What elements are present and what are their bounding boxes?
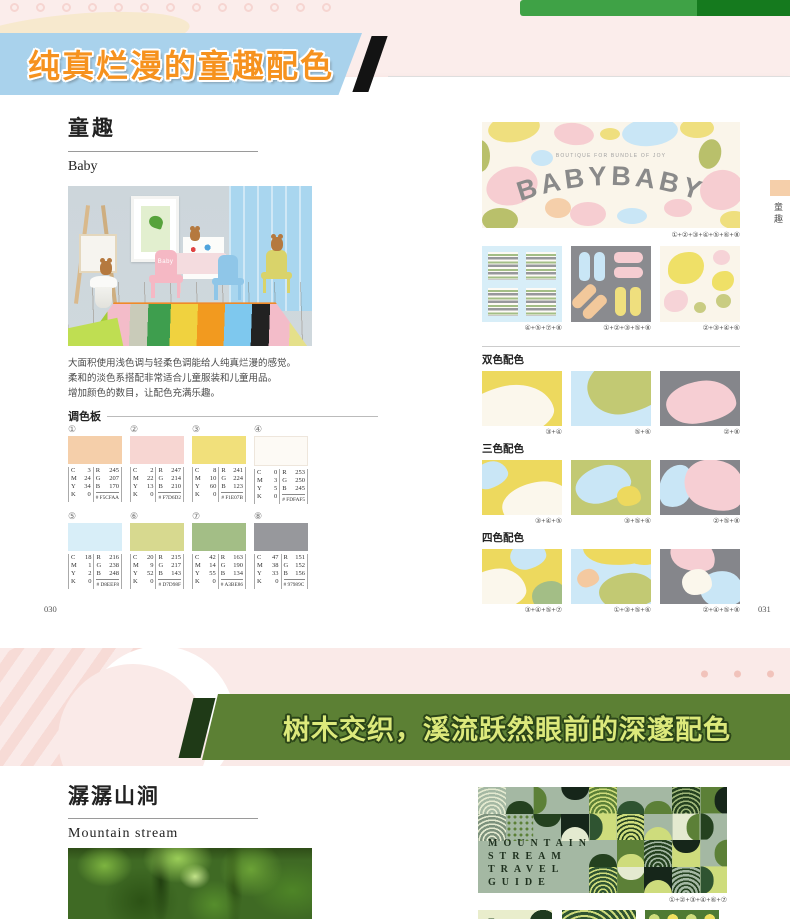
photo-stool [90, 276, 117, 289]
value-number: 0 [150, 578, 153, 586]
color-blob [664, 377, 738, 426]
tile-caption: ③+⑤+⑥ [571, 517, 651, 525]
value-row: R215 [158, 554, 181, 562]
swatch-color [130, 523, 184, 551]
palette-row-2: ⑤C18M1Y2K0R216G238B248# D8EEF8⑥C20M9Y52K… [68, 511, 308, 589]
scheme-section-label: 三色配色 [482, 441, 740, 456]
semicircle-shape [644, 827, 672, 841]
value-row: M22 [133, 475, 153, 483]
value-label: Y [257, 570, 262, 578]
flower-icon [166, 3, 175, 12]
bunny-ears-pattern [571, 246, 651, 322]
semicircle-shape [533, 814, 561, 828]
semicircle-shape [617, 867, 645, 881]
pattern-cell [617, 814, 645, 841]
value-row: G152 [284, 562, 306, 570]
swatch-color [130, 436, 184, 464]
semicircle-shape [672, 840, 700, 854]
value-number: 10 [210, 475, 217, 483]
scheme-tile-art [482, 549, 562, 604]
value-row: C8 [195, 467, 216, 475]
swatch-values: C18M1Y2K0R216G238B248# D8EEF8 [68, 554, 122, 589]
color-blob [583, 371, 651, 420]
design-tile-stripes: ④+⑤+⑦+⑧ [482, 246, 562, 332]
value-row: G238 [96, 562, 119, 570]
semicircle-shape [561, 787, 589, 801]
value-label: M [133, 562, 139, 570]
left-page-subtitle: Baby [68, 159, 98, 175]
rgb-column: R241G224B123# F1E07B [218, 467, 246, 502]
value-row: R151 [284, 554, 306, 562]
progress-bar-segment-dark [697, 0, 790, 16]
value-number: 55 [209, 570, 216, 578]
color-blob [482, 565, 529, 604]
value-label: C [257, 469, 261, 477]
semicircle-shape [617, 854, 645, 868]
scheme-tile-art [482, 460, 562, 515]
value-number: 216 [109, 554, 119, 562]
value-number: 143 [171, 570, 181, 578]
banner-color-caption: ①+②+③+④+⑤+⑥+⑧ [482, 231, 740, 239]
value-row: K0 [257, 578, 279, 586]
scheme-tile-art [571, 460, 651, 515]
photo-blue-chair [212, 255, 244, 300]
value-label: R [282, 469, 286, 477]
color-blob [482, 460, 511, 493]
value-row: R216 [96, 554, 119, 562]
semicircle-shape [700, 866, 714, 893]
swatch-values: C3M24Y34K0R245G207B170# F5CFAA [68, 467, 122, 502]
value-number: 14 [209, 562, 216, 570]
value-row: K0 [71, 491, 91, 499]
value-row: R245 [96, 467, 119, 475]
value-row: B210 [158, 483, 181, 491]
value-number: 38 [272, 562, 279, 570]
palette-row-1: ①C3M24Y34K0R245G207B170# F5CFAA②C2M22Y13… [68, 424, 308, 504]
color-blob [532, 581, 562, 604]
value-row: M3 [257, 477, 277, 485]
palette-rule [107, 416, 378, 417]
tile-caption: ⑤+⑥ [571, 428, 651, 436]
value-number: 250 [295, 477, 305, 485]
palette-label: 调色板 [68, 408, 101, 424]
value-number: 42 [209, 554, 216, 562]
hex-value: # FDFAF5 [282, 494, 305, 504]
flower-icon [114, 3, 123, 12]
value-number: 0 [88, 578, 91, 586]
value-number: 170 [109, 483, 119, 491]
value-label: G [158, 562, 163, 570]
value-number: 152 [295, 562, 305, 570]
scheme-sections: 双色配色③+④⑤+⑥②+⑧三色配色③+④+⑤③+⑤+⑥②+⑤+⑧四色配色③+④+… [482, 346, 740, 614]
value-number: 2 [88, 570, 91, 578]
title-rule [68, 151, 258, 152]
value-number: 248 [109, 570, 119, 578]
value-number: 207 [109, 475, 119, 483]
scheme-tile: ②+⑤+⑧ [660, 460, 740, 525]
value-number: 0 [213, 491, 216, 499]
scheme-section-label: 四色配色 [482, 530, 740, 545]
value-label: G [221, 562, 226, 570]
semicircle-shape [700, 813, 714, 841]
pattern-cell [617, 787, 645, 814]
value-label: Y [71, 483, 76, 491]
flower-icon [192, 3, 201, 12]
value-row: C0 [257, 469, 277, 477]
value-row: G250 [282, 477, 305, 485]
semicircle-shape [714, 787, 727, 815]
flower-icon [244, 3, 253, 12]
value-row: C42 [195, 554, 216, 562]
value-label: C [133, 554, 137, 562]
value-label: G [221, 475, 226, 483]
scheme-tiles-row: ③+④⑤+⑥②+⑧ [482, 371, 740, 436]
color-blob [499, 477, 562, 515]
chair-text: Baby [149, 259, 183, 265]
value-label: B [96, 570, 100, 578]
palette-swatch-block: ④C0M3Y5K0R253G250B245# FDFAF5 [254, 424, 308, 504]
value-number: 123 [233, 483, 243, 491]
value-label: Y [195, 570, 200, 578]
value-row: M14 [195, 562, 216, 570]
baby-banner-subtitle: BOUTIQUE FOR BUNDLE OF JOY [556, 153, 666, 159]
scheme-tile: ②+④+⑤+⑧ [660, 549, 740, 614]
value-row: B123 [221, 483, 243, 491]
value-row: K0 [257, 493, 277, 501]
cmyk-column: C3M24Y34K0 [68, 467, 93, 502]
value-label: Y [71, 570, 76, 578]
tile-caption: ②+⑧ [660, 428, 740, 436]
value-row: B156 [284, 570, 306, 578]
palette-swatch-block: ①C3M24Y34K0R245G207B170# F5CFAA [68, 424, 122, 504]
pattern-cell [644, 867, 672, 894]
flower-icon [62, 3, 71, 12]
value-number: 3 [87, 467, 90, 475]
tile-caption: ②+③+④+⑥ [660, 324, 740, 332]
swatch-number: ⑥ [130, 511, 184, 523]
tile-caption: ①+③+⑤+⑥ [571, 606, 651, 614]
cmyk-column: C47M38Y33K0 [254, 554, 281, 589]
flower-icon [322, 3, 331, 12]
chapter-tab-marker [770, 180, 790, 196]
design-tile-partial [562, 910, 636, 919]
value-label: R [284, 554, 288, 562]
color-blob [507, 549, 548, 572]
value-label: G [282, 477, 287, 485]
semicircle-shape [506, 801, 534, 815]
value-number: 224 [233, 475, 243, 483]
design-tile-bunny-ears: ①+②+③+⑤+⑧ [571, 246, 651, 332]
value-label: G [96, 562, 101, 570]
value-row: K0 [133, 491, 153, 499]
progress-bar-segment-light [520, 0, 697, 16]
value-row: R247 [158, 467, 181, 475]
swatch-number: ③ [192, 424, 246, 436]
value-number: 217 [171, 562, 181, 570]
value-number: 60 [210, 483, 217, 491]
pattern-cell [644, 840, 672, 867]
value-label: R [221, 467, 225, 475]
value-label: C [71, 554, 75, 562]
flower-icon [88, 3, 97, 12]
section-rule [482, 346, 740, 347]
semicircle-shape [686, 813, 700, 841]
section-banner-title: 纯真烂漫的童趣配色 [28, 41, 334, 87]
palette-swatch-block: ⑥C20M9Y52K0R215G217B143# D7D98F [130, 511, 184, 589]
scheme-tile: ③+⑤+⑥ [571, 460, 651, 525]
swatch-values: C8M10Y60K0R241G224B123# F1E07B [192, 467, 246, 502]
value-row: Y13 [133, 483, 153, 491]
semicircle-shape [644, 880, 672, 893]
value-number: 247 [171, 467, 181, 475]
scheme-tile: ①+③+⑤+⑥ [571, 549, 651, 614]
screenshot-root: 纯真烂漫的童趣配色 童趣 Baby Baby 大面积使用浅色调与轻柔色调能给人纯… [0, 0, 790, 919]
value-label: K [71, 578, 76, 586]
value-number: 8 [213, 467, 216, 475]
cmyk-column: C20M9Y52K0 [130, 554, 155, 589]
rgb-column: R253G250B245# FDFAF5 [279, 469, 308, 504]
palette-swatch-block: ③C8M10Y60K0R241G224B123# F1E07B [192, 424, 246, 504]
value-label: G [284, 562, 289, 570]
design-tile-splatter: ②+③+④+⑥ [660, 246, 740, 332]
cmyk-column: C8M10Y60K0 [192, 467, 218, 502]
hex-value: # A3BE86 [221, 579, 243, 589]
value-label: B [158, 570, 162, 578]
scheme-tile-art [571, 549, 651, 604]
swatch-color [254, 436, 308, 466]
swatch-number: ② [130, 424, 184, 436]
hex-value: # F7D6D2 [158, 492, 181, 502]
scheme-tiles-row: ③+④+⑤③+⑤+⑥②+⑤+⑧ [482, 460, 740, 525]
bottom-page-title: 潺潺山涧 [68, 780, 160, 810]
value-number: 13 [147, 483, 154, 491]
swatch-number: ⑤ [68, 511, 122, 523]
pattern-cell [672, 787, 700, 814]
scheme-tile-art [482, 371, 562, 426]
value-row: M38 [257, 562, 279, 570]
page-number-left: 030 [44, 604, 57, 614]
value-row: R253 [282, 469, 305, 477]
value-label: B [221, 483, 225, 491]
value-number: 0 [275, 578, 278, 586]
color-blob [625, 549, 651, 568]
pattern-cell [700, 866, 727, 893]
section-banner-title: 树木交织，溪流跃然眼前的深邃配色 [273, 708, 731, 747]
rgb-column: R163G190B134# A3BE86 [218, 554, 246, 589]
value-label: R [96, 554, 100, 562]
value-row: M1 [71, 562, 91, 570]
rgb-column: R247G214B210# F7D6D2 [155, 467, 184, 502]
chapter-tab-label: 童趣 [772, 202, 785, 226]
swatch-values: C20M9Y52K0R215G217B143# D7D98F [130, 554, 184, 589]
section-divider: 树木交织，溪流跃然眼前的深邃配色 [0, 648, 790, 766]
title-rule [68, 818, 258, 819]
pattern-cell [561, 787, 589, 814]
value-number: 9 [150, 562, 153, 570]
page-number-right: 031 [758, 604, 771, 614]
value-label: K [257, 493, 262, 501]
scheme-tile: ③+④+⑤+⑦ [482, 549, 562, 614]
color-blob [682, 569, 712, 595]
value-label: B [284, 570, 288, 578]
value-label: M [195, 475, 201, 483]
value-row: G190 [221, 562, 243, 570]
value-label: K [133, 578, 138, 586]
pattern-cell [644, 814, 672, 841]
scheme-tile: ③+④ [482, 371, 562, 436]
travel-color-caption: ①+②+③+④+⑥+⑦ [478, 896, 727, 904]
value-label: Y [133, 570, 138, 578]
swatch-number: ④ [254, 424, 308, 436]
hex-value: # F1E07B [221, 492, 243, 502]
pattern-cell [672, 840, 700, 867]
value-number: 33 [272, 570, 279, 578]
value-row: K0 [195, 578, 216, 586]
travel-guide-text: MOUNTAIN STREAM TRAVEL GUIDE [488, 837, 592, 889]
photo-yellow-chair [261, 250, 293, 293]
value-number: 47 [272, 554, 279, 562]
value-label: K [195, 491, 200, 499]
value-label: C [257, 554, 261, 562]
pattern-cell [700, 813, 727, 841]
swatch-values: C0M3Y5K0R253G250B245# FDFAF5 [254, 469, 308, 504]
rgb-column: R216G238B248# D8EEF8 [93, 554, 122, 589]
value-row: K0 [71, 578, 91, 586]
swatch-color [192, 523, 246, 551]
palette-swatch-block: ⑧C47M38Y33K0R151G152B156# 97989C [254, 511, 308, 589]
value-label: C [195, 554, 199, 562]
bottom-page-subtitle: Mountain stream [68, 826, 178, 842]
scheme-tile-art [660, 549, 740, 604]
rgb-column: R151G152B156# 97989C [281, 554, 309, 589]
left-page-description: 大面积使用浅色调与轻柔色调能给人纯真烂漫的感觉。 柔和的淡色系搭配非常适合儿童服… [68, 357, 296, 402]
scheme-tile-art [660, 460, 740, 515]
value-number: 0 [274, 469, 277, 477]
value-row: C3 [71, 467, 91, 475]
value-row: C18 [71, 554, 91, 562]
value-label: B [158, 483, 162, 491]
tile-caption: ③+④ [482, 428, 562, 436]
value-number: 210 [171, 483, 181, 491]
swatch-number: ⑧ [254, 511, 308, 523]
teddy-bear [100, 261, 112, 275]
value-label: K [195, 578, 200, 586]
value-row: Y5 [257, 485, 277, 493]
value-number: 253 [295, 469, 305, 477]
value-row: G207 [96, 475, 119, 483]
value-row: Y33 [257, 570, 279, 578]
value-label: B [282, 485, 286, 493]
semicircle-shape [589, 854, 617, 868]
value-row: Y55 [195, 570, 216, 578]
value-row: B143 [158, 570, 181, 578]
stripes-pattern [482, 246, 562, 322]
value-label: M [257, 477, 263, 485]
value-row: K0 [133, 578, 153, 586]
photo-pink-chair: Baby [149, 250, 183, 298]
rgb-column: R245G207B170# F5CFAA [93, 467, 122, 502]
value-label: C [71, 467, 75, 475]
cmyk-column: C42M14Y55K0 [192, 554, 218, 589]
flower-icon [36, 3, 45, 12]
tile-caption: ③+④+⑤ [482, 517, 562, 525]
scheme-tiles-row: ③+④+⑤+⑦①+③+⑤+⑥②+④+⑤+⑧ [482, 549, 740, 614]
pattern-cell [617, 840, 645, 867]
value-label: R [158, 554, 162, 562]
value-number: 241 [233, 467, 243, 475]
cmyk-column: C0M3Y5K0 [254, 469, 279, 504]
value-number: 22 [147, 475, 154, 483]
value-label: C [133, 467, 137, 475]
pattern-cell [700, 839, 727, 867]
scheme-tile: ⑤+⑥ [571, 371, 651, 436]
design-tile-partial [645, 910, 719, 919]
pattern-cell [700, 787, 727, 815]
value-number: 215 [171, 554, 181, 562]
value-row: Y52 [133, 570, 153, 578]
section-banner-forest: 树木交织，溪流跃然眼前的深邃配色 [202, 694, 790, 760]
value-row: Y2 [71, 570, 91, 578]
flower-icon [296, 3, 305, 12]
travel-guide-design: MOUNTAIN STREAM TRAVEL GUIDE [478, 787, 727, 893]
value-label: M [195, 562, 201, 570]
value-row: M9 [133, 562, 153, 570]
paint-splatter-pattern [660, 246, 740, 322]
value-row: M24 [71, 475, 91, 483]
pattern-cell [617, 867, 645, 894]
value-number: 0 [274, 493, 277, 501]
value-number: 190 [233, 562, 243, 570]
tile-caption: ②+④+⑤+⑧ [660, 606, 740, 614]
value-label: C [195, 467, 199, 475]
swatch-number: ① [68, 424, 122, 436]
value-number: 214 [171, 475, 181, 483]
swatch-number: ⑦ [192, 511, 246, 523]
flower-icon [218, 3, 227, 12]
value-label: R [96, 467, 100, 475]
value-row: C2 [133, 467, 153, 475]
value-number: 1 [88, 562, 91, 570]
value-number: 20 [147, 554, 154, 562]
value-label: G [158, 475, 163, 483]
value-row: K0 [195, 491, 216, 499]
value-number: 18 [85, 554, 92, 562]
semicircle-shape [644, 801, 672, 815]
value-label: M [257, 562, 263, 570]
scheme-tile: ③+④+⑤ [482, 460, 562, 525]
swatch-color [254, 523, 308, 551]
value-label: B [221, 570, 225, 578]
value-row: C20 [133, 554, 153, 562]
swatch-color [68, 523, 122, 551]
swatch-values: C42M14Y55K0R163G190B134# A3BE86 [192, 554, 246, 589]
hex-value: # D8EEF8 [96, 579, 119, 589]
scheme-section-label: 双色配色 [482, 352, 740, 367]
kids-room-photo: Baby [68, 186, 312, 346]
palette-swatch-block: ②C2M22Y13K0R247G214B210# F7D6D2 [130, 424, 184, 504]
value-row: G217 [158, 562, 181, 570]
value-label: B [96, 483, 100, 491]
semicircle-shape [714, 839, 727, 867]
forest-photo [68, 848, 312, 919]
value-row: B170 [96, 483, 119, 491]
value-row: R163 [221, 554, 243, 562]
pattern-cell [672, 867, 700, 894]
swatch-color [192, 436, 246, 464]
value-label: K [133, 491, 138, 499]
pattern-cell [478, 787, 506, 814]
value-number: 156 [295, 570, 305, 578]
